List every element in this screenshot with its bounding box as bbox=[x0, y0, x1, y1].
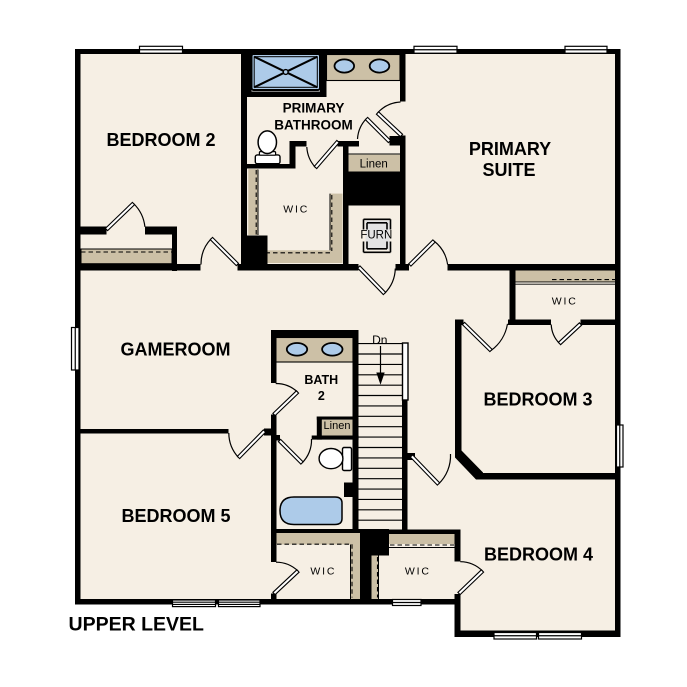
svg-text:BEDROOM 3: BEDROOM 3 bbox=[483, 390, 592, 410]
svg-text:WIC: WIC bbox=[283, 204, 309, 216]
svg-text:BEDROOM 2: BEDROOM 2 bbox=[106, 130, 215, 150]
svg-text:GAMEROOM: GAMEROOM bbox=[121, 339, 231, 359]
svg-text:SUITE: SUITE bbox=[482, 160, 535, 180]
svg-text:WIC: WIC bbox=[405, 565, 431, 577]
svg-text:BEDROOM 5: BEDROOM 5 bbox=[121, 506, 230, 526]
svg-text:PRIMARY: PRIMARY bbox=[469, 139, 551, 159]
svg-text:WIC: WIC bbox=[310, 566, 336, 578]
svg-text:BATH: BATH bbox=[304, 373, 338, 387]
svg-text:Linen: Linen bbox=[324, 420, 351, 432]
svg-text:Dn: Dn bbox=[372, 333, 387, 347]
svg-text:FURN: FURN bbox=[360, 230, 392, 242]
svg-text:PRIMARY: PRIMARY bbox=[283, 100, 345, 115]
svg-text:WIC: WIC bbox=[552, 295, 578, 307]
svg-text:Linen: Linen bbox=[360, 159, 388, 171]
svg-text:BEDROOM 4: BEDROOM 4 bbox=[484, 545, 593, 565]
svg-text:2: 2 bbox=[318, 389, 325, 403]
svg-text:UPPER LEVEL: UPPER LEVEL bbox=[69, 614, 205, 636]
svg-text:BATHROOM: BATHROOM bbox=[274, 118, 353, 133]
